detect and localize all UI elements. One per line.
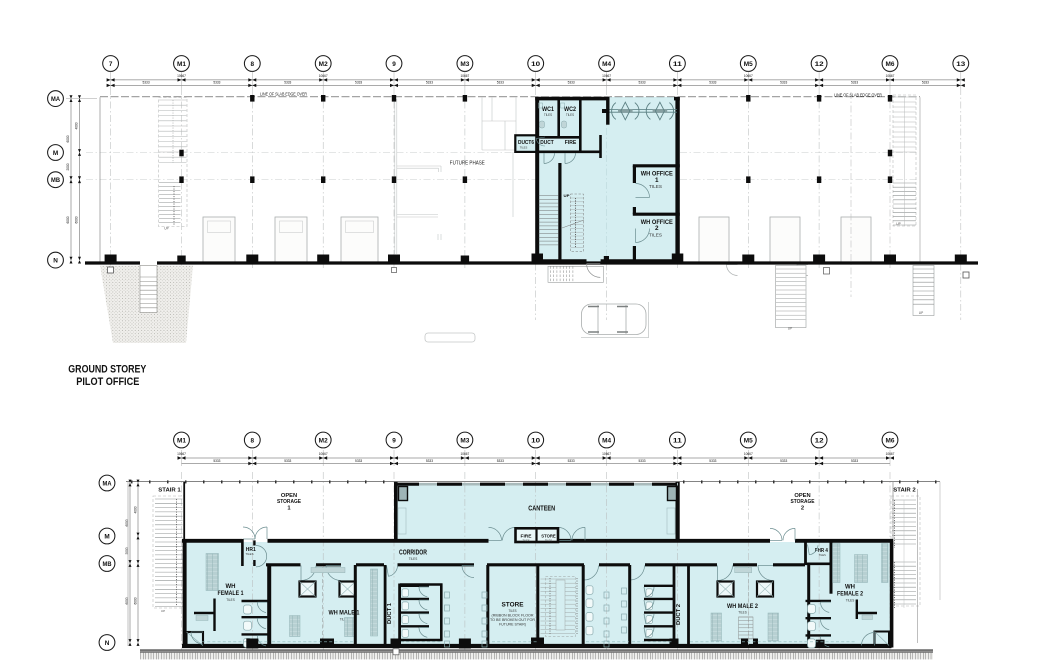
svg-text:M4: M4 xyxy=(602,61,611,68)
svg-text:12: 12 xyxy=(815,61,825,68)
svg-text:13: 13 xyxy=(956,61,966,68)
svg-text:6000: 6000 xyxy=(125,597,129,604)
svg-text:UP: UP xyxy=(919,311,923,315)
svg-text:GROUND STOREY: GROUND STOREY xyxy=(68,363,146,375)
svg-text:STORE: STORE xyxy=(502,602,525,609)
svg-text:LINE OF SLAB EDGE OVER: LINE OF SLAB EDGE OVER xyxy=(834,92,882,97)
svg-text:5333: 5333 xyxy=(355,459,362,463)
svg-text:FEMALE 1: FEMALE 1 xyxy=(218,590,244,597)
svg-text:5333: 5333 xyxy=(355,81,362,85)
svg-text:7: 7 xyxy=(109,61,113,68)
svg-text:5333: 5333 xyxy=(851,81,858,85)
svg-text:M4: M4 xyxy=(602,437,611,444)
svg-text:10667: 10667 xyxy=(886,74,895,78)
svg-text:2000: 2000 xyxy=(125,547,129,554)
svg-text:5333: 5333 xyxy=(284,459,291,463)
svg-text:WH: WH xyxy=(226,583,237,590)
svg-text:5333: 5333 xyxy=(568,81,575,85)
svg-text:FIRE: FIRE xyxy=(565,140,577,146)
svg-text:TILES: TILES xyxy=(523,538,530,542)
svg-text:FUTURE STAIR): FUTURE STAIR) xyxy=(499,622,526,626)
svg-text:STORAGE: STORAGE xyxy=(277,499,301,505)
svg-text:M1: M1 xyxy=(177,61,186,68)
svg-text:WH: WH xyxy=(845,584,856,591)
svg-text:5333: 5333 xyxy=(709,459,716,463)
svg-text:UP: UP xyxy=(896,222,900,226)
svg-text:9: 9 xyxy=(392,437,396,444)
svg-text:4000: 4000 xyxy=(75,122,79,129)
svg-text:TILES: TILES xyxy=(545,538,552,542)
svg-text:M3: M3 xyxy=(460,437,469,444)
svg-text:PILOT OFFICE: PILOT OFFICE xyxy=(76,376,139,388)
svg-text:UP: UP xyxy=(564,194,571,198)
svg-text:MB: MB xyxy=(51,177,60,184)
svg-text:10667: 10667 xyxy=(602,452,611,456)
svg-text:5333: 5333 xyxy=(638,81,645,85)
svg-text:STORAGE: STORAGE xyxy=(791,499,815,505)
svg-text:M: M xyxy=(104,533,109,540)
svg-text:FUTURE PHASE: FUTURE PHASE xyxy=(450,161,485,167)
svg-text:5333: 5333 xyxy=(426,81,433,85)
svg-text:M5: M5 xyxy=(744,61,753,68)
svg-text:10667: 10667 xyxy=(177,74,186,78)
svg-text:10667: 10667 xyxy=(319,74,328,78)
svg-text:10: 10 xyxy=(531,437,541,444)
svg-text:10667: 10667 xyxy=(177,452,186,456)
svg-text:DUCT 2: DUCT 2 xyxy=(676,604,682,625)
svg-text:MA: MA xyxy=(51,96,60,103)
svg-text:UP: UP xyxy=(161,609,165,613)
svg-text:N: N xyxy=(53,257,58,264)
svg-text:10667: 10667 xyxy=(319,452,328,456)
svg-text:TILES: TILES xyxy=(846,598,855,602)
svg-text:2: 2 xyxy=(655,225,659,232)
svg-text:4000: 4000 xyxy=(134,506,138,513)
svg-text:5333: 5333 xyxy=(213,459,220,463)
svg-text:MB: MB xyxy=(103,561,112,568)
svg-text:5333: 5333 xyxy=(426,459,433,463)
svg-text:2000: 2000 xyxy=(66,163,70,170)
svg-text:TILES: TILES xyxy=(520,145,528,149)
svg-text:11: 11 xyxy=(673,437,683,444)
svg-text:5333: 5333 xyxy=(638,459,645,463)
svg-text:TILES: TILES xyxy=(409,557,418,561)
svg-text:M1: M1 xyxy=(177,437,186,444)
svg-text:6000: 6000 xyxy=(75,216,79,223)
svg-text:1: 1 xyxy=(655,177,659,184)
svg-text:11: 11 xyxy=(673,61,683,68)
svg-text:5333: 5333 xyxy=(780,459,787,463)
svg-text:MA: MA xyxy=(103,480,112,487)
svg-text:5333: 5333 xyxy=(497,81,504,85)
svg-text:10667: 10667 xyxy=(602,74,611,78)
svg-text:TILES: TILES xyxy=(246,552,254,556)
svg-text:STAIR 2: STAIR 2 xyxy=(893,488,916,494)
svg-text:5333: 5333 xyxy=(143,81,150,85)
svg-text:M6: M6 xyxy=(886,437,895,444)
svg-text:M: M xyxy=(53,150,58,157)
svg-text:(RIBBON BLOCK FLOOR: (RIBBON BLOCK FLOOR xyxy=(492,614,534,618)
svg-text:5333: 5333 xyxy=(709,81,716,85)
svg-text:M3: M3 xyxy=(460,61,469,68)
svg-text:M5: M5 xyxy=(744,437,753,444)
svg-text:TILES: TILES xyxy=(649,232,662,237)
svg-text:WH MALE 2: WH MALE 2 xyxy=(727,603,758,610)
svg-text:DUCT: DUCT xyxy=(540,140,554,146)
svg-text:CORRIDOR: CORRIDOR xyxy=(399,549,427,556)
svg-text:M2: M2 xyxy=(319,437,328,444)
svg-text:2: 2 xyxy=(801,505,804,511)
svg-text:LINE OF SLAB EDGE OVER: LINE OF SLAB EDGE OVER xyxy=(260,91,307,96)
svg-text:10667: 10667 xyxy=(886,452,895,456)
svg-text:M2: M2 xyxy=(319,61,328,68)
svg-text:6000: 6000 xyxy=(66,216,70,223)
svg-text:5333: 5333 xyxy=(922,81,929,85)
svg-text:UP: UP xyxy=(164,227,168,231)
svg-text:TO BE BROKEN OUT FOR: TO BE BROKEN OUT FOR xyxy=(490,618,535,622)
svg-text:5333: 5333 xyxy=(284,81,291,85)
svg-text:UP: UP xyxy=(788,327,792,331)
svg-text:6000: 6000 xyxy=(66,135,70,142)
svg-text:STAIR 1: STAIR 1 xyxy=(158,488,181,494)
svg-text:N: N xyxy=(105,640,110,647)
svg-text:5333: 5333 xyxy=(568,459,575,463)
svg-text:5333: 5333 xyxy=(851,459,858,463)
svg-text:TILES: TILES xyxy=(819,553,826,557)
svg-text:FEMALE 2: FEMALE 2 xyxy=(837,591,863,598)
svg-text:6000: 6000 xyxy=(125,519,129,526)
svg-text:10667: 10667 xyxy=(460,452,469,456)
svg-text:6000: 6000 xyxy=(134,597,138,604)
svg-text:9: 9 xyxy=(392,61,396,68)
svg-text:8: 8 xyxy=(251,61,255,68)
svg-text:TILES: TILES xyxy=(509,609,518,613)
svg-text:DUCT 1: DUCT 1 xyxy=(387,603,393,624)
svg-text:10667: 10667 xyxy=(460,74,469,78)
svg-text:10: 10 xyxy=(531,61,541,68)
svg-text:TILES: TILES xyxy=(226,598,235,602)
svg-text:5333: 5333 xyxy=(497,459,504,463)
svg-text:10667: 10667 xyxy=(744,452,753,456)
svg-text:5333: 5333 xyxy=(213,81,220,85)
svg-text:M6: M6 xyxy=(886,61,895,68)
svg-text:5333: 5333 xyxy=(780,81,787,85)
svg-text:CANTEEN: CANTEEN xyxy=(528,504,555,513)
svg-text:TILES: TILES xyxy=(649,184,662,189)
svg-text:TILES: TILES xyxy=(738,611,747,615)
svg-text:12: 12 xyxy=(815,437,825,444)
svg-text:8: 8 xyxy=(251,437,255,444)
svg-text:TILES: TILES xyxy=(566,113,575,117)
svg-text:TILES: TILES xyxy=(544,113,553,117)
svg-text:10667: 10667 xyxy=(744,74,753,78)
